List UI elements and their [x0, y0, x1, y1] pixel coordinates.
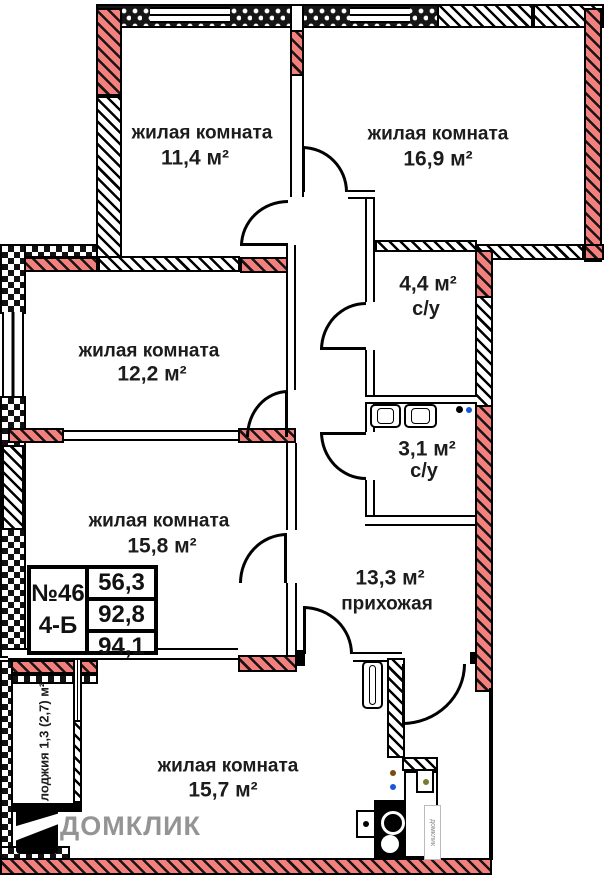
wall-bath2-left [365, 480, 375, 520]
room-living-5-area: 15,7 м² [188, 780, 257, 801]
wall-room4-right [286, 583, 297, 658]
loggia-label: лоджия 1,3 (2,7) м² [38, 683, 51, 802]
watermark-vertical-label: домклик [424, 805, 441, 860]
wall-step-red [584, 244, 604, 260]
room-living-3-area: 12,2 м² [117, 364, 186, 385]
door-arc-icon-bath2 [320, 432, 366, 480]
wall-partition [365, 199, 375, 250]
wall-bath2-bottom [365, 515, 475, 526]
sink-icon [416, 769, 434, 793]
wall-left-upper-hatch [96, 96, 122, 258]
door-arc-icon-bath1 [320, 302, 366, 350]
wall-loggia-top-red [4, 660, 98, 674]
room-living-1-area: 11,4 м² [161, 148, 229, 169]
plumbing-dot-icon [466, 407, 472, 413]
wall-partition [290, 6, 304, 30]
oven-icon [356, 810, 376, 838]
wall-between-baths [365, 395, 477, 404]
wall-loggia-right-hatch [73, 720, 82, 803]
wall-bottom-red [0, 858, 492, 875]
sink-drain-icon [423, 779, 429, 785]
wall-partition [348, 190, 375, 199]
door-arc-icon-room3 [246, 390, 288, 437]
area-living: 56,3 [89, 569, 154, 597]
wall-r3-bottom [64, 430, 238, 441]
wall-step-hatch [477, 244, 584, 260]
door-arc-icon-room4 [239, 533, 287, 583]
area-total-with-loggia: 94,1 [89, 629, 154, 661]
wall-right-mid-red2 [475, 405, 493, 692]
hallway-name: прихожая [341, 595, 433, 614]
plumbing-dot-icon [390, 784, 396, 790]
wall-room4-right [286, 443, 297, 530]
door-arc-icon-room2 [302, 146, 348, 192]
apartment-info-box: №46 4-Б 56,3 92,8 94,1 [27, 565, 158, 655]
washing-machine-icon [370, 404, 401, 428]
wall-loggia-left [0, 660, 13, 852]
apartment-areas: 56,3 92,8 94,1 [89, 569, 154, 651]
room-living-3-name: жилая комната [79, 342, 220, 361]
apartment-id: №46 4-Б [31, 569, 89, 651]
oven-knob-icon [363, 821, 369, 827]
wall-left-checker1 [0, 244, 26, 314]
room-living-5-name: жилая комната [158, 757, 299, 776]
wall-stub [470, 652, 477, 664]
plumbing-dot-icon [390, 770, 396, 776]
window-left [2, 312, 24, 396]
wall-r1-bottom-hatch [98, 256, 240, 272]
room-living-2-name: жилая комната [368, 125, 509, 144]
window-top-left [150, 7, 230, 23]
wall-room3-right [286, 245, 296, 390]
room-living-2-area: 16,9 м² [403, 149, 472, 170]
bathroom-1-name: с/у [412, 299, 440, 319]
apartment-number: №46 [31, 580, 84, 608]
apartment-unit: 4-Б [39, 612, 78, 640]
washing-machine-icon [404, 404, 437, 428]
watermark-text: ДОМКЛИК [60, 811, 201, 842]
wall-partition-red [290, 30, 304, 76]
wall-top-hatch [437, 4, 533, 28]
watermark-vertical-text: домклик [429, 819, 436, 846]
domklik-house-logo-icon [16, 806, 58, 854]
room-living-4-name: жилая комната [89, 512, 230, 531]
wall-right-thin [489, 688, 493, 860]
bathroom-2-area: 3,1 м² [398, 439, 456, 460]
stove-burners-icon [374, 800, 406, 858]
hallway-area: 13,3 м² [355, 568, 424, 589]
room-living-4-area: 15,8 м² [127, 536, 196, 557]
wall-room4-bottom-red [238, 655, 297, 672]
area-total: 92,8 [89, 597, 154, 629]
room-living-1-name: жилая комната [132, 124, 273, 143]
bathroom-1-area: 4,4 м² [399, 274, 457, 295]
wall-bath1-left [365, 250, 375, 302]
burner-icon [381, 835, 399, 853]
floor-plan: ДОМКЛИК [0, 0, 604, 877]
door-arc-icon-kitchen [402, 664, 466, 725]
window-loggia [73, 660, 82, 720]
wall-r3-bottom-red-left [8, 428, 64, 443]
wall-right-mid-hatch [475, 296, 493, 407]
door-arc-icon-room1 [240, 200, 288, 246]
wall-left-hatch-seg [2, 445, 24, 530]
wall-right-red [584, 8, 602, 262]
wall-left-upper-red [96, 8, 122, 96]
plumbing-dot-icon [456, 406, 463, 413]
wall-right-mid-red1 [475, 250, 493, 298]
bathroom-2-name: с/у [410, 461, 438, 481]
radiator-icon [362, 661, 383, 709]
wall-room2-bottom [375, 240, 477, 252]
window-top-mid [350, 7, 410, 23]
burner-icon [381, 811, 405, 835]
